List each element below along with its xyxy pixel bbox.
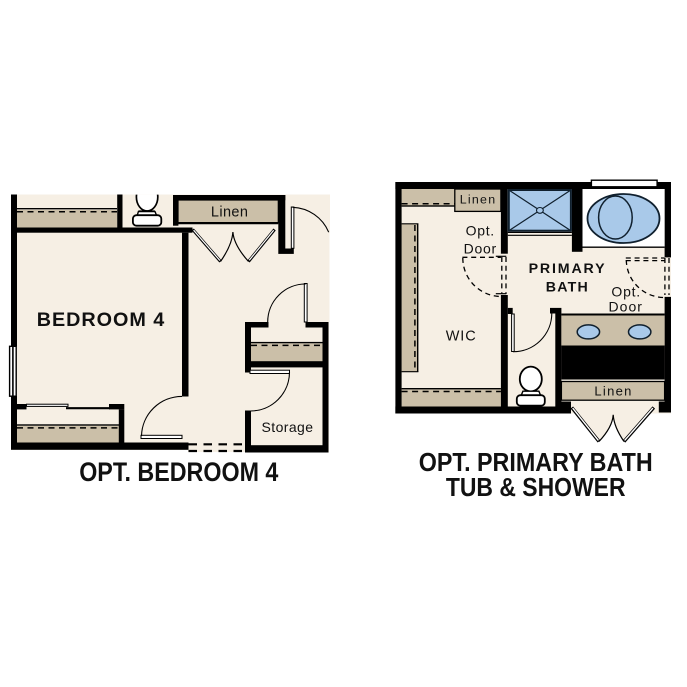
svg-text:Door: Door — [608, 299, 642, 315]
svg-text:BEDROOM 4: BEDROOM 4 — [37, 309, 165, 331]
svg-text:Linen: Linen — [211, 205, 248, 221]
svg-text:BATH: BATH — [546, 279, 588, 295]
svg-text:Opt.: Opt. — [611, 283, 640, 299]
svg-text:WIC: WIC — [446, 328, 476, 344]
svg-text:TUB & SHOWER: TUB & SHOWER — [446, 472, 626, 502]
svg-text:Opt.: Opt. — [466, 223, 495, 239]
svg-text:OPT. BEDROOM 4: OPT. BEDROOM 4 — [79, 457, 278, 487]
svg-text:Linen: Linen — [594, 384, 631, 399]
svg-text:Linen: Linen — [460, 193, 495, 207]
svg-text:Door: Door — [464, 241, 497, 257]
svg-text:Storage: Storage — [262, 419, 314, 435]
